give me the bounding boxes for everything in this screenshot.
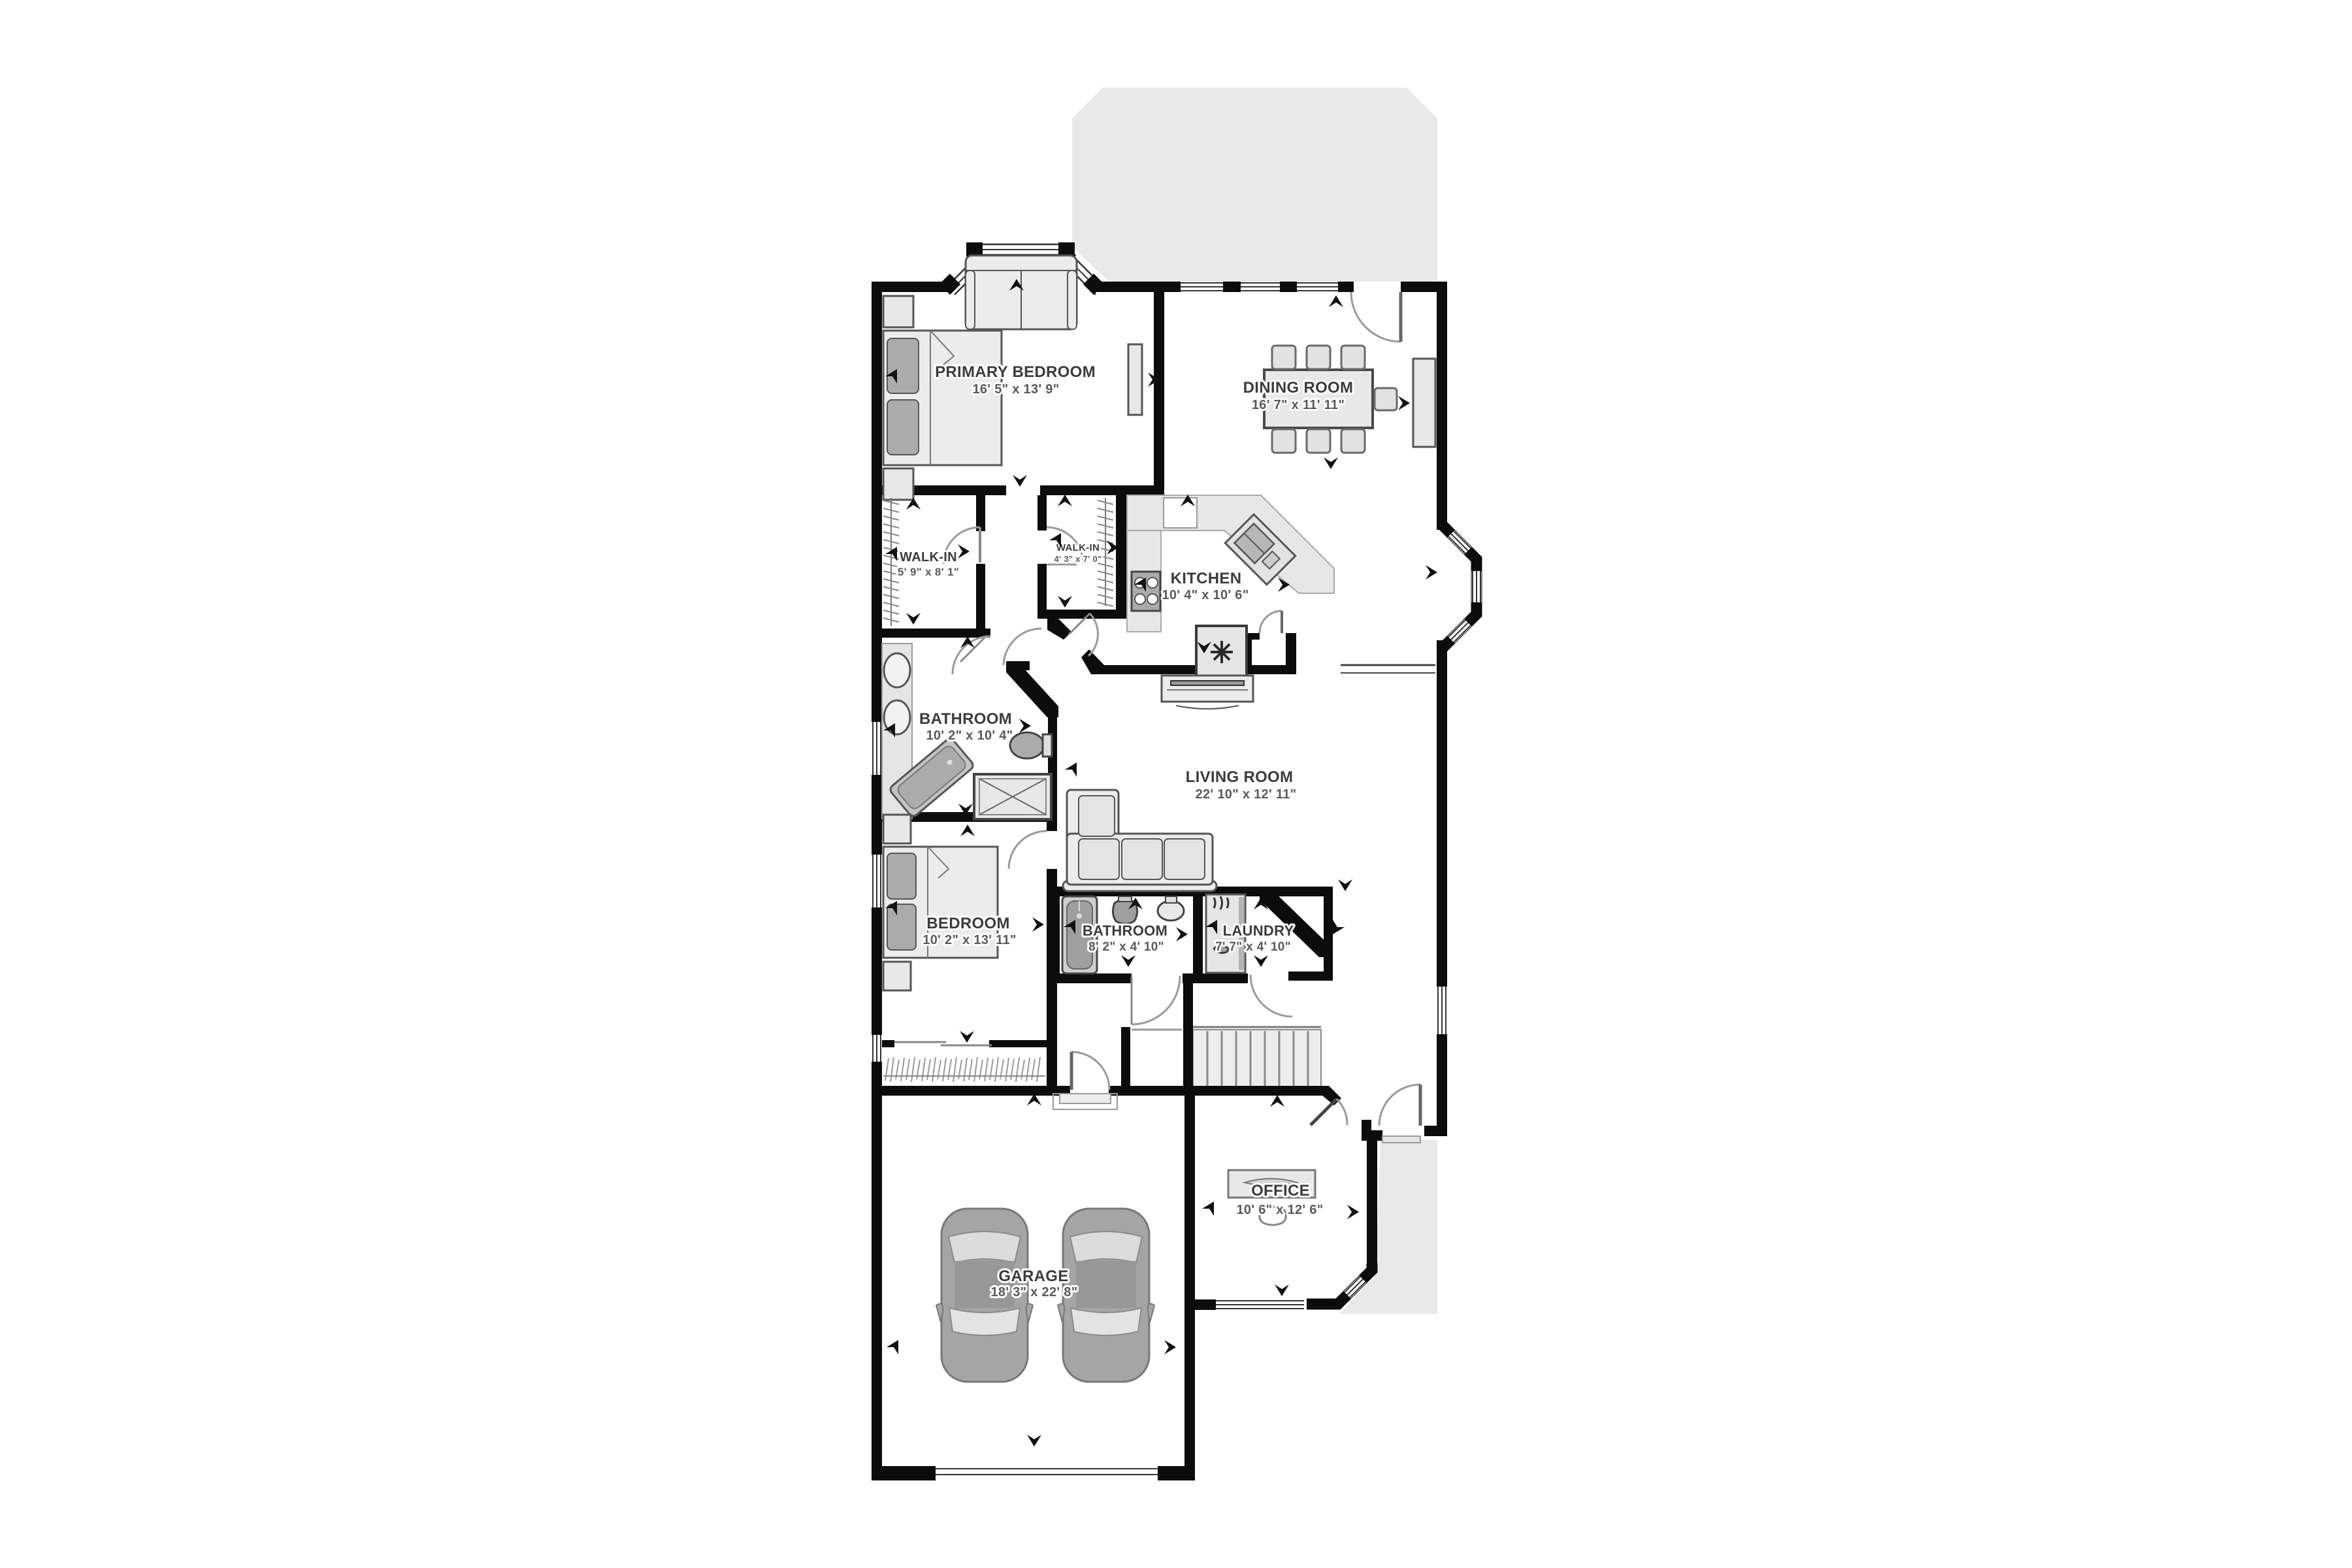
svg-text:GARAGE: GARAGE bbox=[998, 1267, 1068, 1285]
svg-text:5' 9" x 8' 1": 5' 9" x 8' 1" bbox=[898, 566, 959, 578]
svg-text:DINING ROOM: DINING ROOM bbox=[1243, 379, 1354, 397]
svg-text:8' 2" x 4' 10": 8' 2" x 4' 10" bbox=[1088, 940, 1164, 954]
svg-text:OFFICE: OFFICE bbox=[1251, 1182, 1310, 1200]
svg-text:BATHROOM: BATHROOM bbox=[1083, 923, 1168, 939]
svg-text:18' 3" x 22' 8": 18' 3" x 22' 8" bbox=[990, 1285, 1077, 1299]
svg-text:10' 2" x 13' 11": 10' 2" x 13' 11" bbox=[923, 933, 1016, 947]
svg-text:LIVING ROOM: LIVING ROOM bbox=[1186, 768, 1294, 786]
svg-text:BATHROOM: BATHROOM bbox=[919, 710, 1012, 728]
svg-text:PRIMARY BEDROOM: PRIMARY BEDROOM bbox=[935, 363, 1096, 381]
svg-text:22' 10" x 12' 11": 22' 10" x 12' 11" bbox=[1196, 787, 1297, 802]
svg-text:10' 2" x 10' 4": 10' 2" x 10' 4" bbox=[926, 728, 1013, 743]
svg-text:BEDROOM: BEDROOM bbox=[926, 915, 1009, 932]
svg-text:16' 7" x 11' 11": 16' 7" x 11' 11" bbox=[1252, 398, 1345, 412]
svg-text:16' 5" x 13' 9": 16' 5" x 13' 9" bbox=[972, 382, 1059, 397]
svg-text:LAUNDRY: LAUNDRY bbox=[1223, 923, 1294, 939]
svg-text:KITCHEN: KITCHEN bbox=[1171, 570, 1242, 587]
svg-text:WALK-IN: WALK-IN bbox=[1056, 542, 1100, 553]
svg-text:7' 7" x 4' 10": 7' 7" x 4' 10" bbox=[1215, 940, 1291, 954]
svg-text:10' 6" x 12' 6": 10' 6" x 12' 6" bbox=[1236, 1203, 1323, 1217]
svg-text:WALK-IN: WALK-IN bbox=[900, 550, 957, 564]
svg-text:4' 3" x 7' 0": 4' 3" x 7' 0" bbox=[1054, 554, 1102, 564]
svg-text:10' 4" x 10' 6": 10' 4" x 10' 6" bbox=[1162, 588, 1249, 602]
